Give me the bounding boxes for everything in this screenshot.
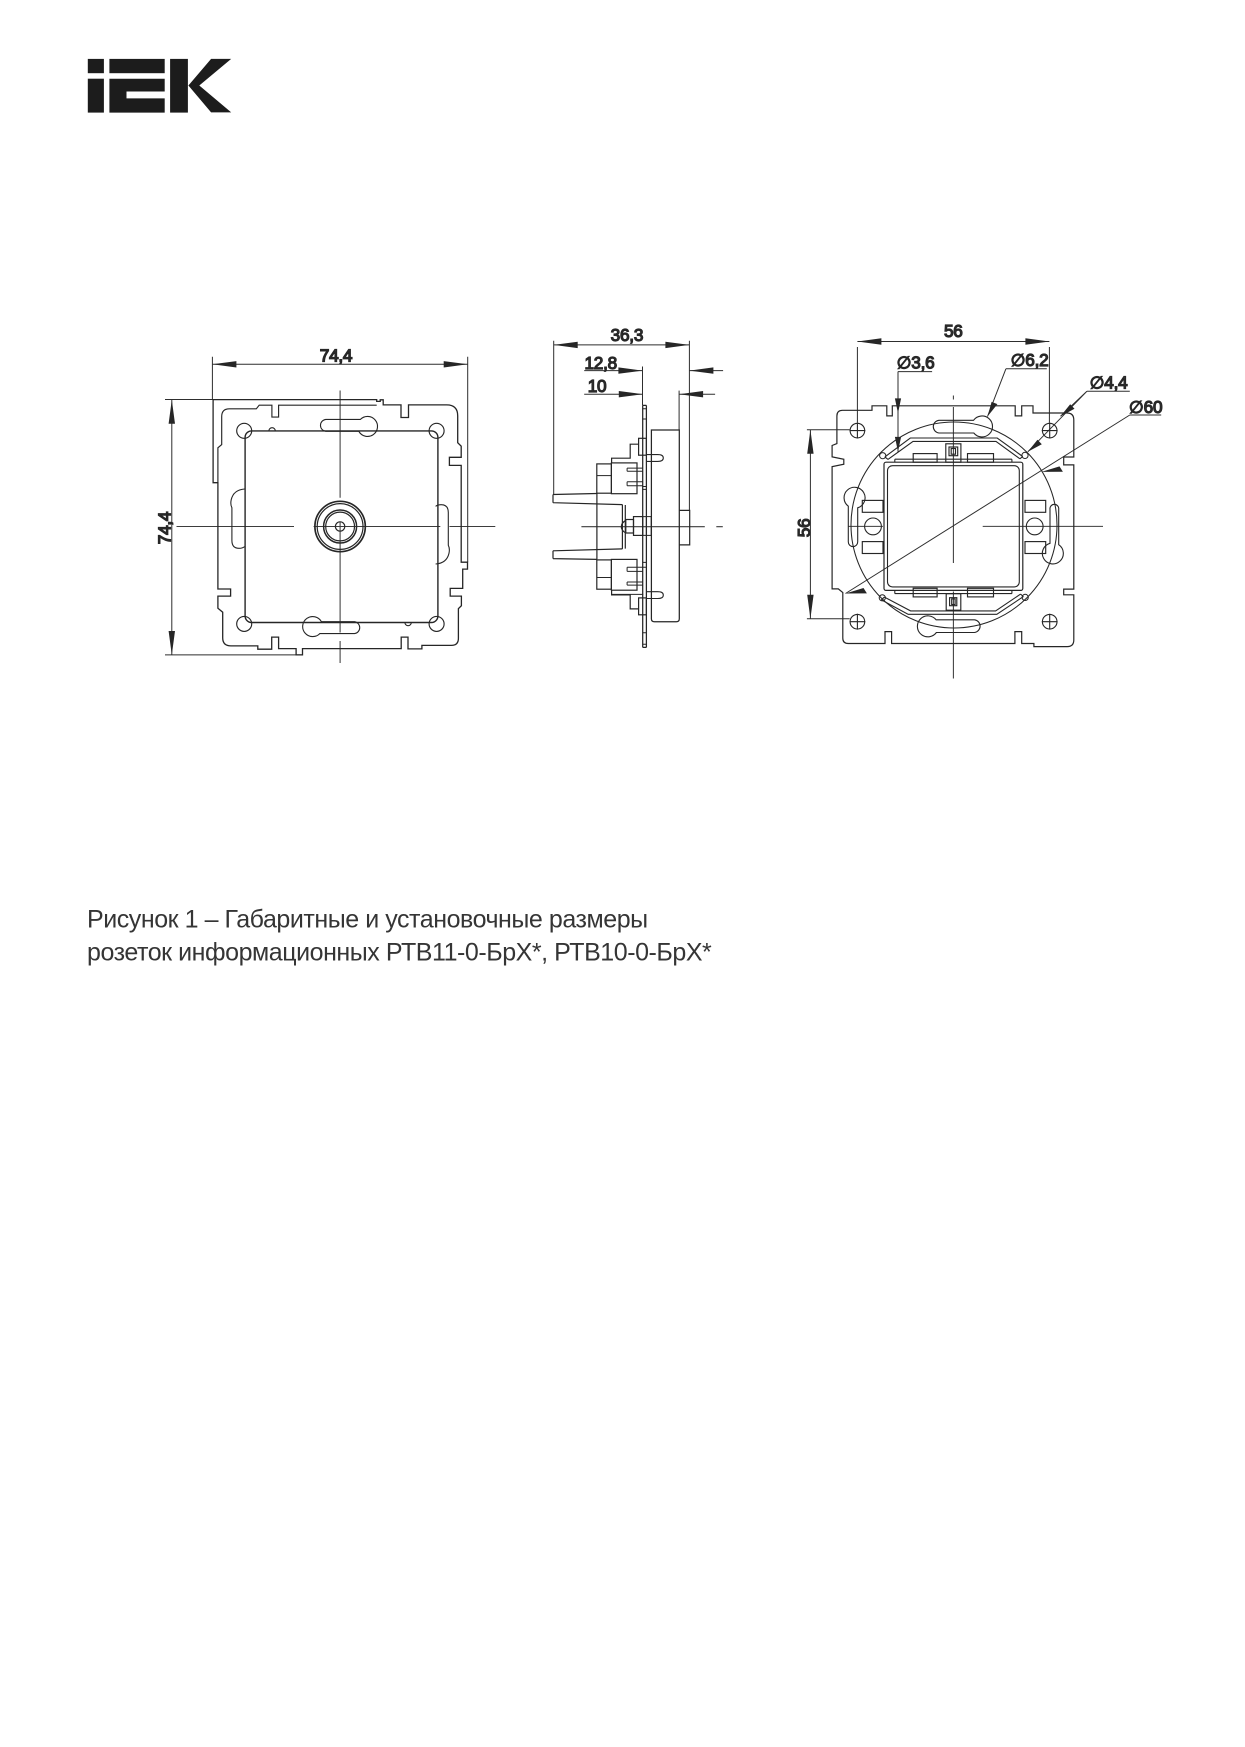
svg-text:36,3: 36,3 xyxy=(611,325,643,345)
svg-text:56: 56 xyxy=(944,321,963,341)
svg-text:розеток информационных РТВ11-0: розеток информационных РТВ11-0-БрХ*, РТВ… xyxy=(87,938,712,966)
svg-text:Рисунок 1 – Габаритные и устан: Рисунок 1 – Габаритные и установочные ра… xyxy=(87,905,648,933)
svg-text:10: 10 xyxy=(588,376,607,396)
svg-text:74,4: 74,4 xyxy=(320,345,353,365)
svg-text:12,8: 12,8 xyxy=(584,353,616,373)
svg-text:∅6,2: ∅6,2 xyxy=(1011,350,1049,370)
svg-text:∅60: ∅60 xyxy=(1129,397,1162,417)
svg-text:74,4: 74,4 xyxy=(154,511,174,544)
svg-text:∅4,4: ∅4,4 xyxy=(1090,373,1129,393)
svg-text:56: 56 xyxy=(794,519,814,538)
svg-text:∅3,6: ∅3,6 xyxy=(897,352,935,372)
